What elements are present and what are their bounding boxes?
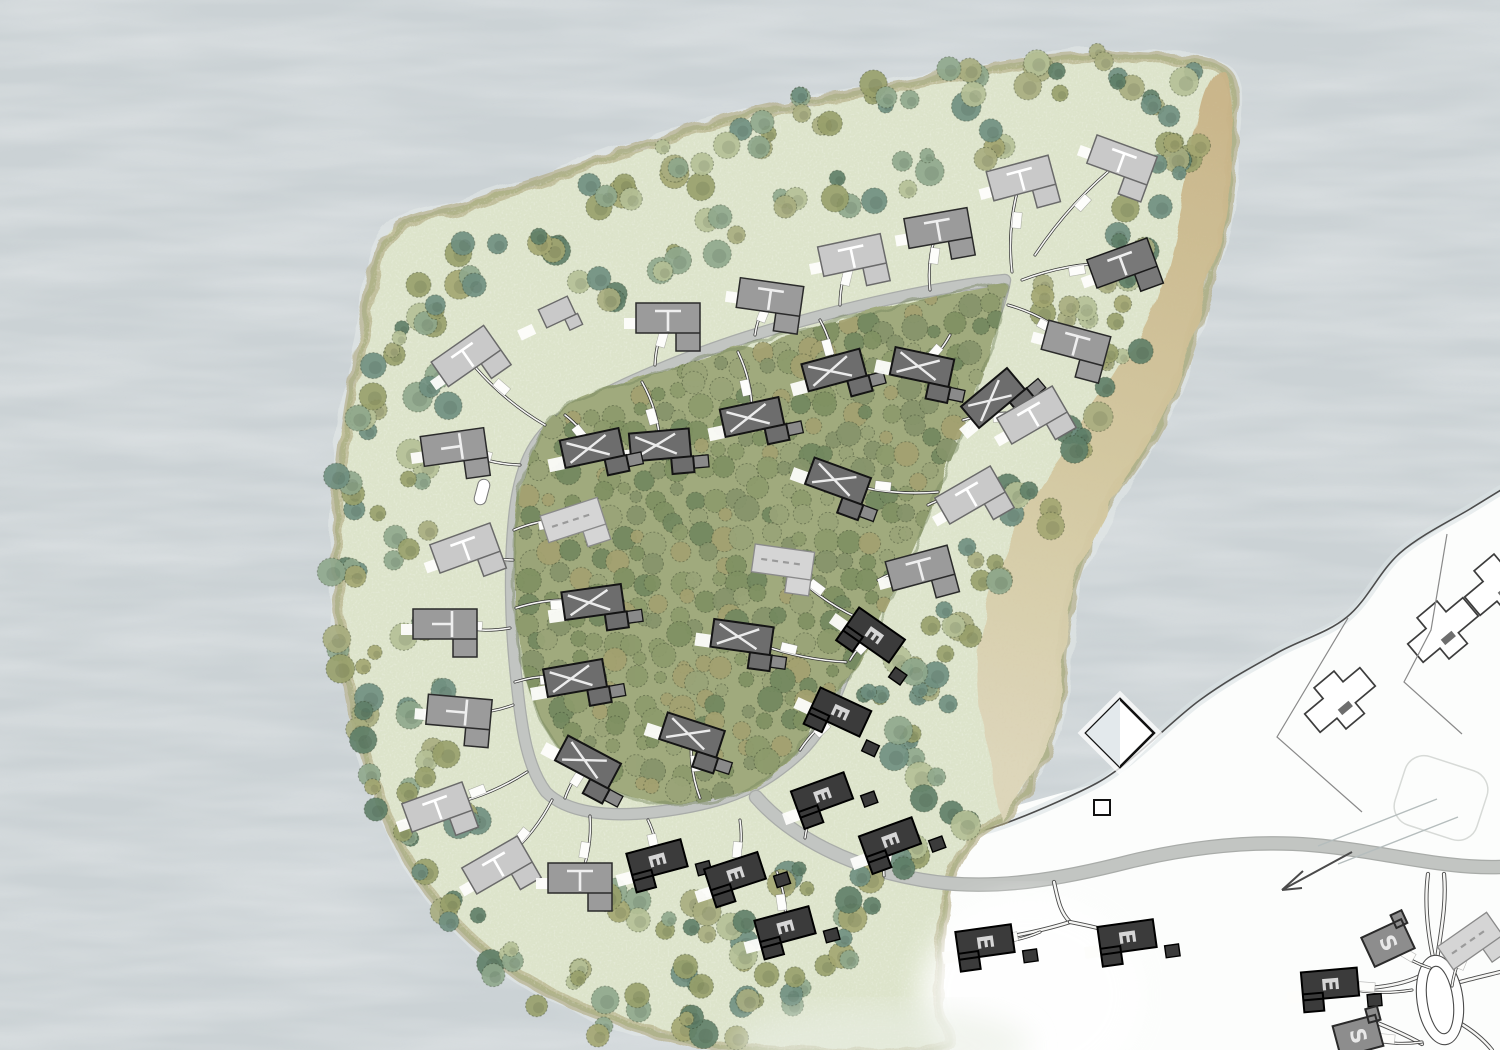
site-plan-map: EEEEEEEEEESS bbox=[0, 0, 1500, 1050]
parking-pad bbox=[1359, 982, 1376, 992]
terrace-pad bbox=[1084, 945, 1102, 959]
outbuilding bbox=[1367, 994, 1382, 1007]
house-type-label: E bbox=[1316, 976, 1342, 993]
terrace-pad bbox=[1287, 990, 1304, 1003]
garage bbox=[627, 609, 644, 623]
parking-pad bbox=[776, 894, 787, 911]
parking-pad bbox=[732, 841, 742, 858]
outbuilding bbox=[1023, 949, 1039, 963]
garage bbox=[770, 655, 787, 669]
garage bbox=[693, 455, 709, 468]
small-structure-marker bbox=[1094, 800, 1110, 815]
parking-pad bbox=[1012, 212, 1022, 229]
outbuilding bbox=[823, 928, 840, 943]
parking-pad bbox=[929, 247, 940, 264]
parking-pad bbox=[875, 481, 892, 492]
site-plan-document: EEEEEEEEEESS bbox=[0, 0, 1500, 1050]
outbuilding bbox=[1165, 944, 1181, 958]
terrace-pad bbox=[942, 950, 960, 964]
